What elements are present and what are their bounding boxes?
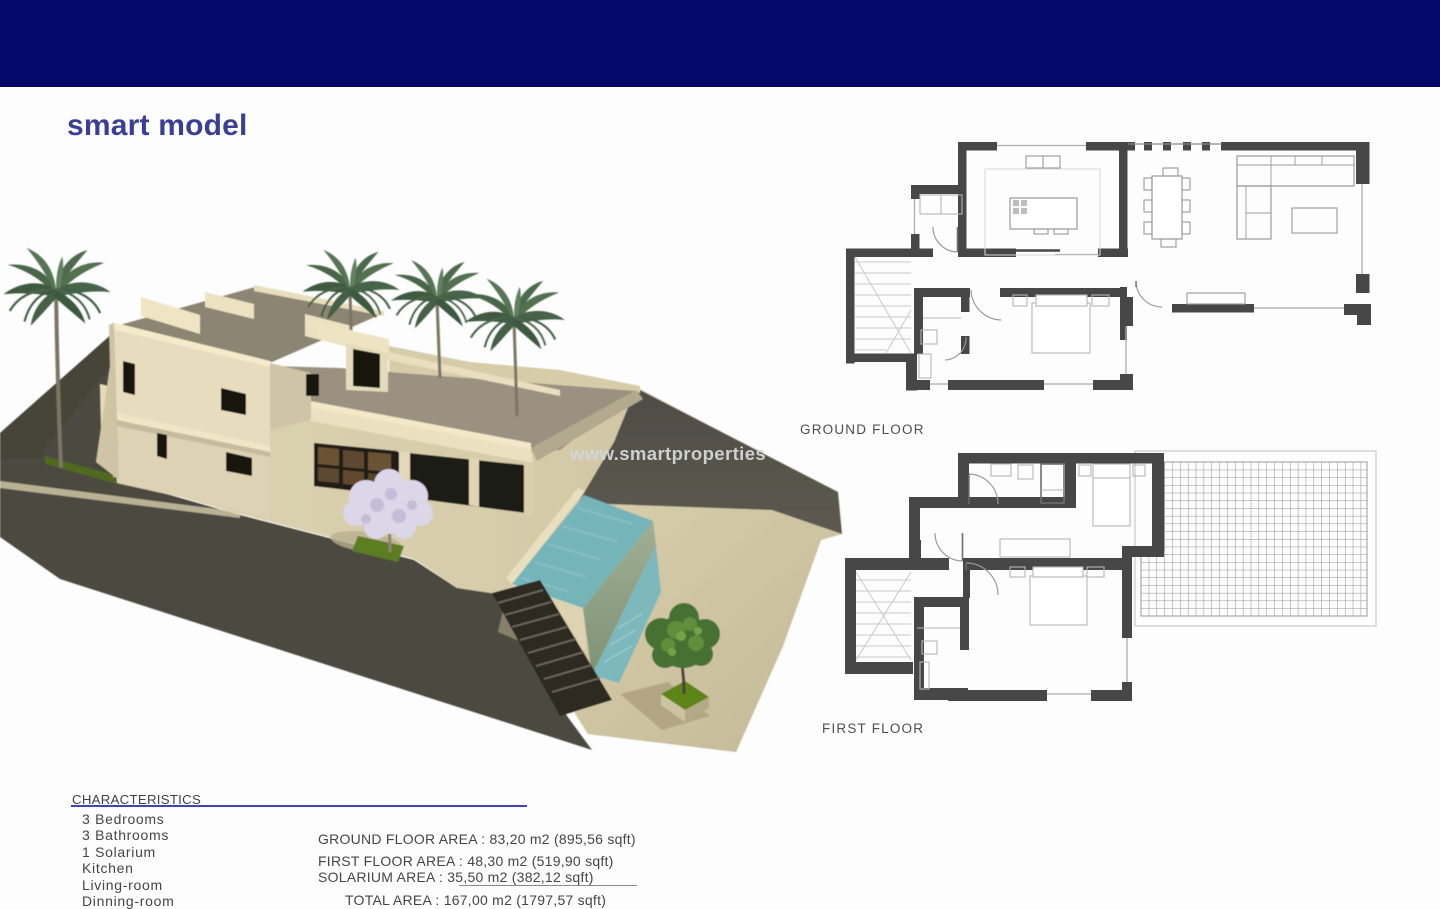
svg-text:GROUND FLOOR: GROUND FLOOR xyxy=(800,422,925,437)
svg-text:www.smartproperties: www.smartproperties xyxy=(569,443,766,464)
svg-text:FIRST FLOOR: FIRST FLOOR xyxy=(822,721,924,736)
